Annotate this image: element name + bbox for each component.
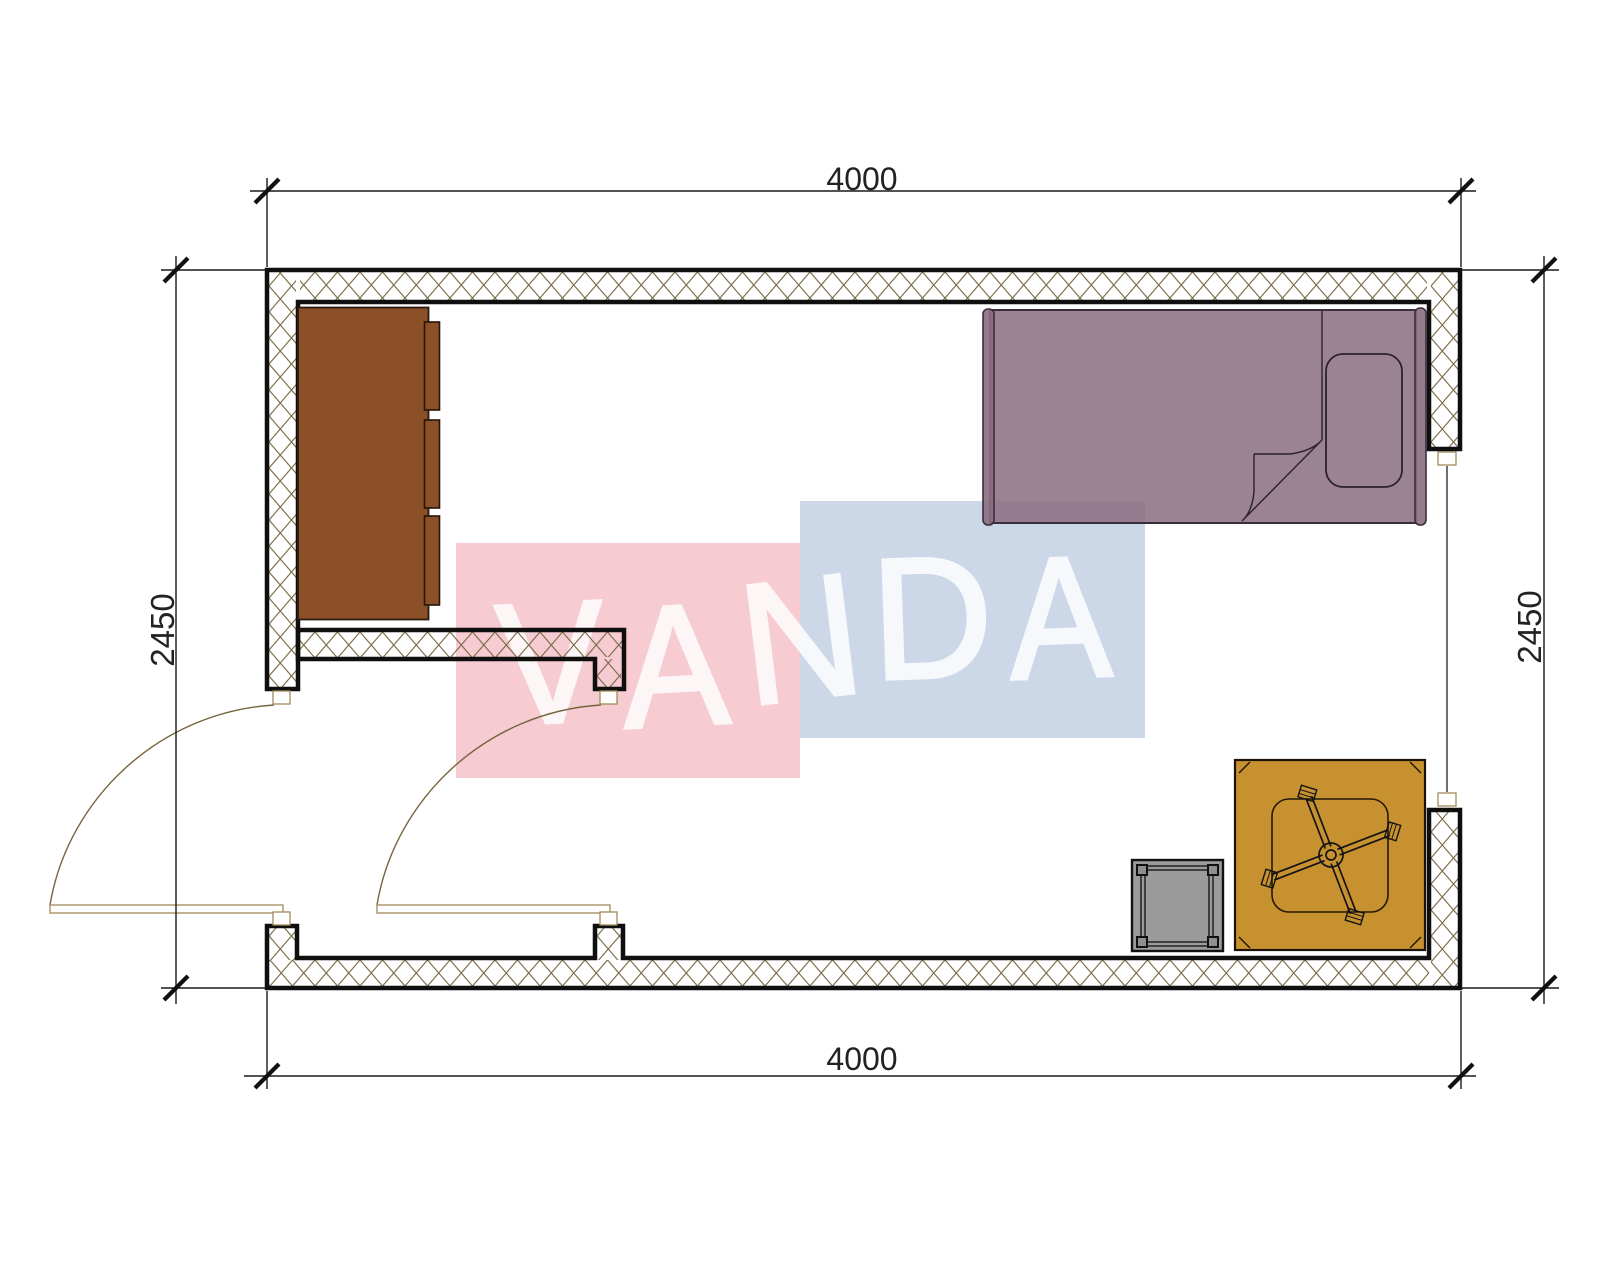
svg-text:4000: 4000: [826, 1041, 897, 1077]
svg-text:4000: 4000: [826, 161, 897, 197]
svg-text:N: N: [730, 536, 871, 742]
svg-text:A: A: [617, 567, 732, 765]
svg-text:A: A: [1006, 520, 1114, 716]
svg-text:V: V: [493, 565, 610, 762]
svg-text:2450: 2450: [1511, 590, 1548, 663]
svg-text:D: D: [868, 520, 995, 716]
svg-text:2450: 2450: [144, 593, 181, 666]
